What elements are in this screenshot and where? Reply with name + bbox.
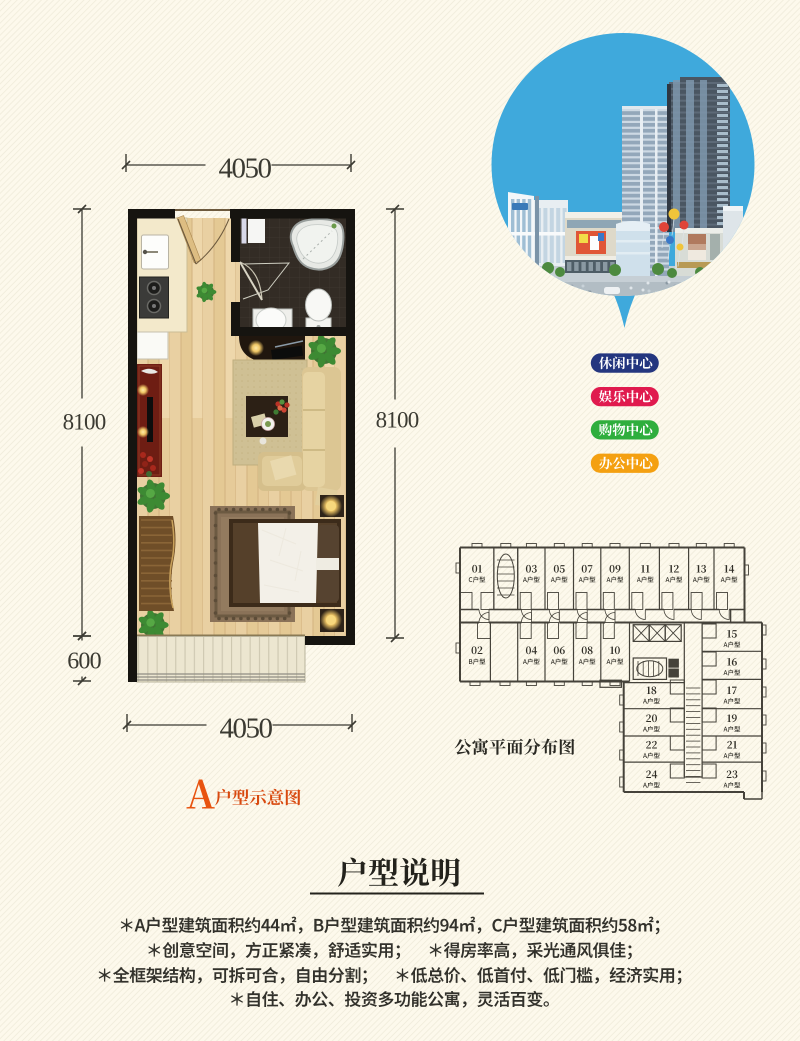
svg-text:4050: 4050 [220,713,273,745]
svg-text:8100: 8100 [63,410,106,435]
svg-text:8100: 8100 [376,408,419,433]
svg-text:600: 600 [67,649,101,675]
svg-text:4050: 4050 [219,153,272,185]
